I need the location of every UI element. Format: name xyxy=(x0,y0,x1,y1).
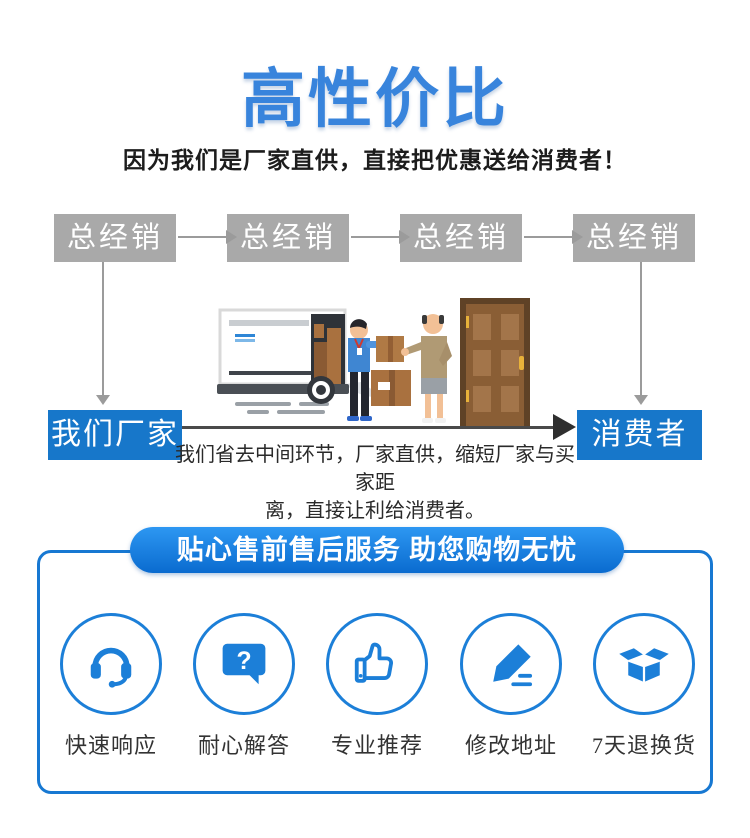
flow-caption-line1: 我们省去中间环节，厂家直供，缩短厂家与买家距 xyxy=(175,441,575,497)
distributor-box-4: 总经销 xyxy=(573,214,695,262)
package-graphic xyxy=(371,336,411,406)
service-label: 修改地址 xyxy=(444,728,578,760)
page-title: 高性价比 xyxy=(0,48,750,140)
flow-caption-line2: 离，直接让利给消费者。 xyxy=(175,497,575,525)
service-circle xyxy=(60,613,162,715)
delivery-illustration xyxy=(183,294,545,432)
service-item-fast-response: 快速响应 xyxy=(44,613,178,760)
service-circle xyxy=(326,613,428,715)
factory-box: 我们厂家 xyxy=(48,410,182,460)
consumer-box: 消费者 xyxy=(577,410,702,460)
page-subtitle: 因为我们是厂家直供，直接把优惠送给消费者！ xyxy=(0,141,750,175)
door-graphic xyxy=(460,298,530,426)
flow-caption: 我们省去中间环节，厂家直供，缩短厂家与买家距 离，直接让利给消费者。 xyxy=(175,441,575,525)
service-item-return-policy: 7天退换货 xyxy=(577,613,711,760)
right-arrow-icon xyxy=(351,236,399,238)
thumbs-up-icon xyxy=(350,637,404,691)
service-label: 耐心解答 xyxy=(177,728,311,760)
service-label: 7天退换货 xyxy=(577,728,711,760)
service-circle: ? xyxy=(193,613,295,715)
service-label: 专业推荐 xyxy=(310,728,444,760)
service-item-patient-answer: ? 耐心解答 xyxy=(177,613,311,760)
down-arrow-icon xyxy=(102,262,104,396)
headset-agent-icon xyxy=(84,637,138,691)
service-circle xyxy=(460,613,562,715)
service-item-pro-recommend: 专业推荐 xyxy=(310,613,444,760)
flow-arrowhead-icon xyxy=(553,414,576,440)
right-arrow-icon xyxy=(178,236,226,238)
distributor-box-2: 总经销 xyxy=(227,214,349,262)
service-label: 快速响应 xyxy=(44,728,178,760)
question-glyph: ? xyxy=(236,648,251,675)
service-circle xyxy=(593,613,695,715)
distributor-box-3: 总经销 xyxy=(400,214,522,262)
service-item-edit-address: 修改地址 xyxy=(444,613,578,760)
open-box-icon xyxy=(617,637,671,691)
right-arrow-icon xyxy=(524,236,572,238)
down-arrow-icon xyxy=(640,262,642,396)
distributor-box-1: 总经销 xyxy=(54,214,176,262)
customer-graphic xyxy=(401,314,452,423)
promo-page: 高性价比 因为我们是厂家直供，直接把优惠送给消费者！ 总经销 总经销 总经销 总… xyxy=(0,0,750,838)
question-bubble-icon: ? xyxy=(217,637,271,691)
pencil-edit-icon xyxy=(484,637,538,691)
service-header-pill: 贴心售前售后服务 助您购物无忧 xyxy=(130,527,624,573)
